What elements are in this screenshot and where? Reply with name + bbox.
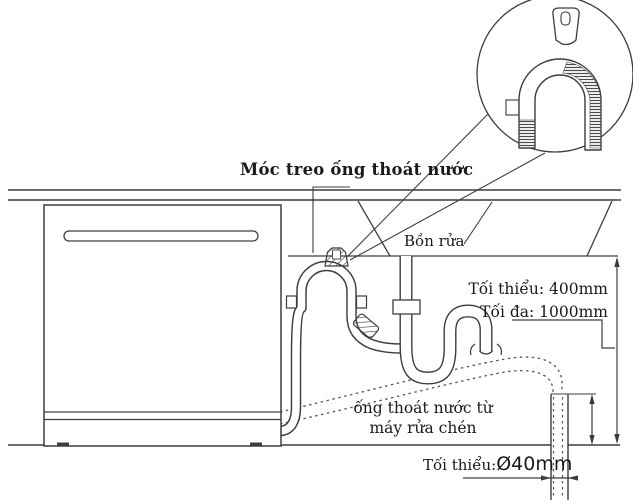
dimension-min-label: Tối thiểu: 400mm — [468, 278, 608, 301]
hook-detail-circle — [477, 0, 633, 152]
height-dimension-labels: Tối thiểu: 400mm Tối đa: 1000mm — [468, 278, 608, 324]
pipe-coupling — [393, 300, 420, 314]
standpipe — [551, 394, 596, 500]
diagram-linework — [0, 0, 633, 500]
hose-caption-line2: máy rửa chén — [352, 418, 494, 438]
detail-clip — [506, 100, 519, 115]
trap-outlet-end — [480, 351, 493, 354]
diameter-value: Ø40mm — [496, 453, 572, 475]
hose-caption: ống thoát nước từ máy rửa chén — [352, 398, 494, 438]
dishwasher — [44, 205, 281, 446]
detail-leg-ribbing — [519, 120, 535, 148]
sink-label: Bồn rửa — [404, 232, 464, 250]
dimension-max-label: Tối đa: 1000mm — [468, 301, 608, 324]
hose-caption-line1: ống thoát nước từ — [352, 398, 494, 418]
dimension-leader — [512, 320, 615, 348]
diameter-label: Tối thiểu:Ø40mm — [423, 453, 572, 475]
dishwasher-foot — [57, 443, 69, 447]
installation-diagram: Móc treo ống thoát nước Bồn rửa Tối thiể… — [0, 0, 633, 500]
dimension-400-1000 — [614, 257, 619, 444]
hook-title-label: Móc treo ống thoát nước — [240, 160, 440, 179]
dimension-standpipe — [589, 394, 594, 445]
hook-side-tab — [357, 296, 367, 308]
dishwasher-handle — [64, 231, 258, 241]
diameter-prefix: Tối thiểu: — [423, 456, 496, 474]
hook-side-tab — [287, 296, 297, 308]
countertop-lines — [8, 190, 621, 200]
dishwasher-foot — [250, 443, 262, 447]
